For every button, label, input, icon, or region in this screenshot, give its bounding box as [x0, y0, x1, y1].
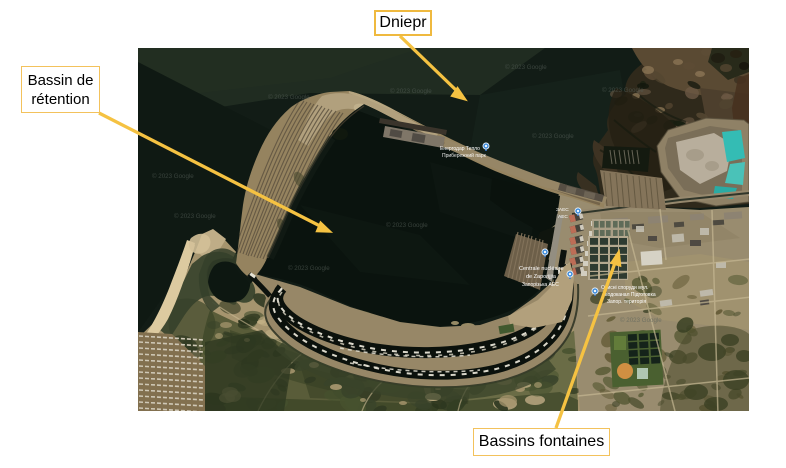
svg-text:Енергодар Тепло: Енергодар Тепло [440, 146, 480, 152]
svg-text:© 2023 Google: © 2023 Google [268, 94, 310, 101]
svg-text:© 2023 Google: © 2023 Google [505, 64, 547, 71]
svg-text:АЕС: АЕС [558, 214, 568, 220]
svg-text:© 2023 Google: © 2023 Google [174, 213, 216, 220]
svg-text:© 2023 Google: © 2023 Google [620, 317, 662, 324]
svg-text:© 2023 Google: © 2023 Google [288, 265, 330, 272]
svg-text:Запорізька АЕС: Запорізька АЕС [522, 282, 559, 288]
svg-text:© 2023 Google: © 2023 Google [390, 88, 432, 95]
svg-text:водоканал Підготовка: водоканал Підготовка [605, 292, 656, 298]
svg-text:© 2023 Google: © 2023 Google [532, 133, 574, 140]
svg-text:© 2023 Google: © 2023 Google [386, 222, 428, 229]
svg-text:ЗАЕС: ЗАЕС [556, 207, 569, 213]
svg-text:© 2023 Google: © 2023 Google [602, 87, 644, 94]
svg-text:Centrale nucléaire: Centrale nucléaire [519, 266, 564, 272]
svg-text:de Zaporijjia: de Zaporijjia [526, 274, 557, 280]
svg-text:Запор. територія: Запор. територія [607, 299, 646, 305]
svg-text:Прибережний парк: Прибережний парк [442, 152, 487, 159]
svg-text:© 2023 Google: © 2023 Google [152, 173, 194, 180]
